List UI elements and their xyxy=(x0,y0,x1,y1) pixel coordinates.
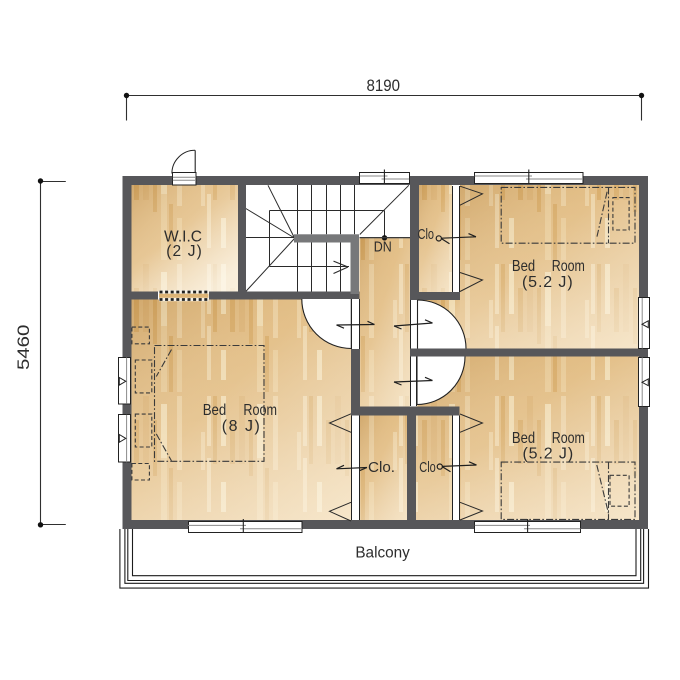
svg-text:Clo: Clo xyxy=(418,226,435,243)
svg-text:DN: DN xyxy=(374,238,392,255)
svg-text:Room: Room xyxy=(243,402,277,419)
svg-text:Balcony: Balcony xyxy=(355,544,410,561)
svg-text:(2 J): (2 J) xyxy=(166,243,202,260)
svg-text:Bed: Bed xyxy=(203,402,227,419)
svg-text:Room: Room xyxy=(552,258,585,275)
svg-text:5460: 5460 xyxy=(15,325,33,371)
svg-text:Bed: Bed xyxy=(512,258,535,275)
svg-text:Clo: Clo xyxy=(419,459,436,476)
svg-text:Bed: Bed xyxy=(512,430,535,447)
svg-text:(5.2 J): (5.2 J) xyxy=(522,274,573,291)
svg-text:Clo.: Clo. xyxy=(368,459,395,476)
svg-text:8190: 8190 xyxy=(367,77,401,95)
svg-text:(5.2 J): (5.2 J) xyxy=(522,446,573,463)
svg-text:Room: Room xyxy=(552,430,585,447)
